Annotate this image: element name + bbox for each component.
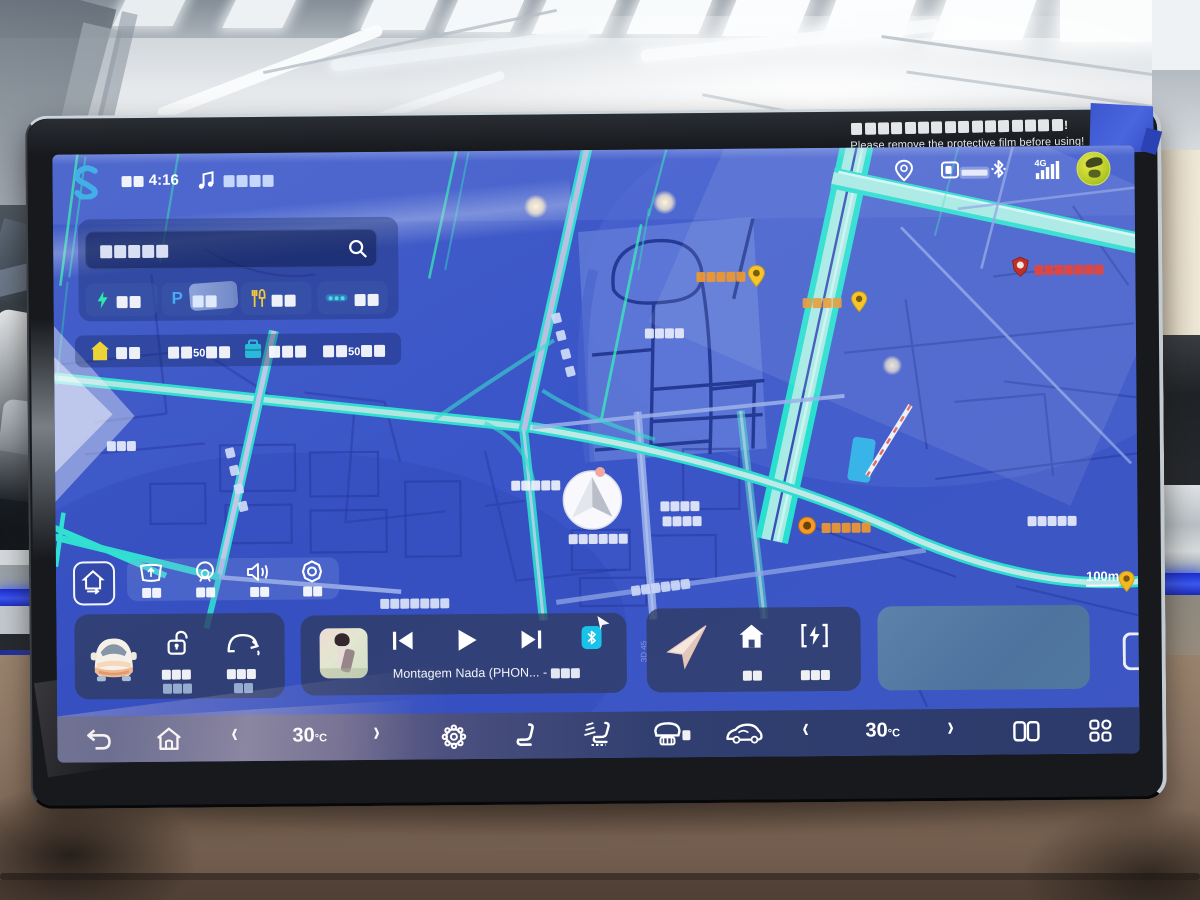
svg-text:4G: 4G (1034, 158, 1046, 168)
